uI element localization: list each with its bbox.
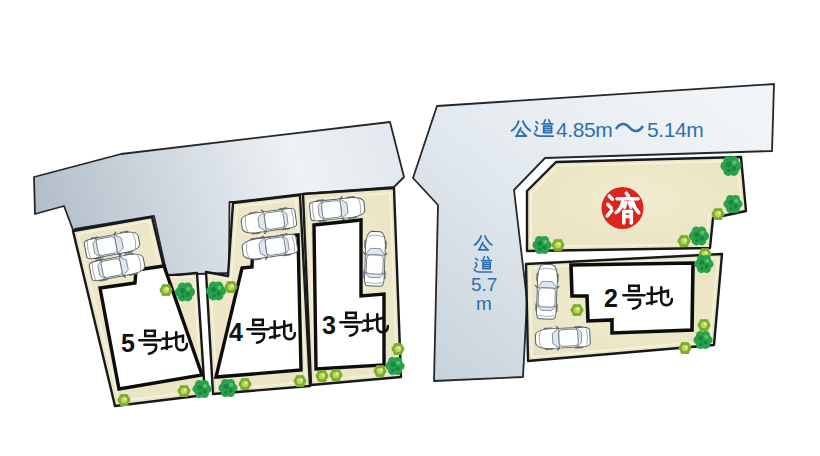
svg-text:4: 4: [229, 318, 243, 346]
svg-text:3: 3: [322, 311, 336, 339]
svg-text:4.85m: 4.85m: [556, 118, 612, 141]
svg-text:5: 5: [121, 329, 135, 357]
svg-text:5.7: 5.7: [471, 274, 497, 295]
svg-text:m: m: [476, 293, 492, 314]
svg-text:5.14m: 5.14m: [647, 118, 703, 141]
svg-text:2: 2: [604, 284, 618, 312]
